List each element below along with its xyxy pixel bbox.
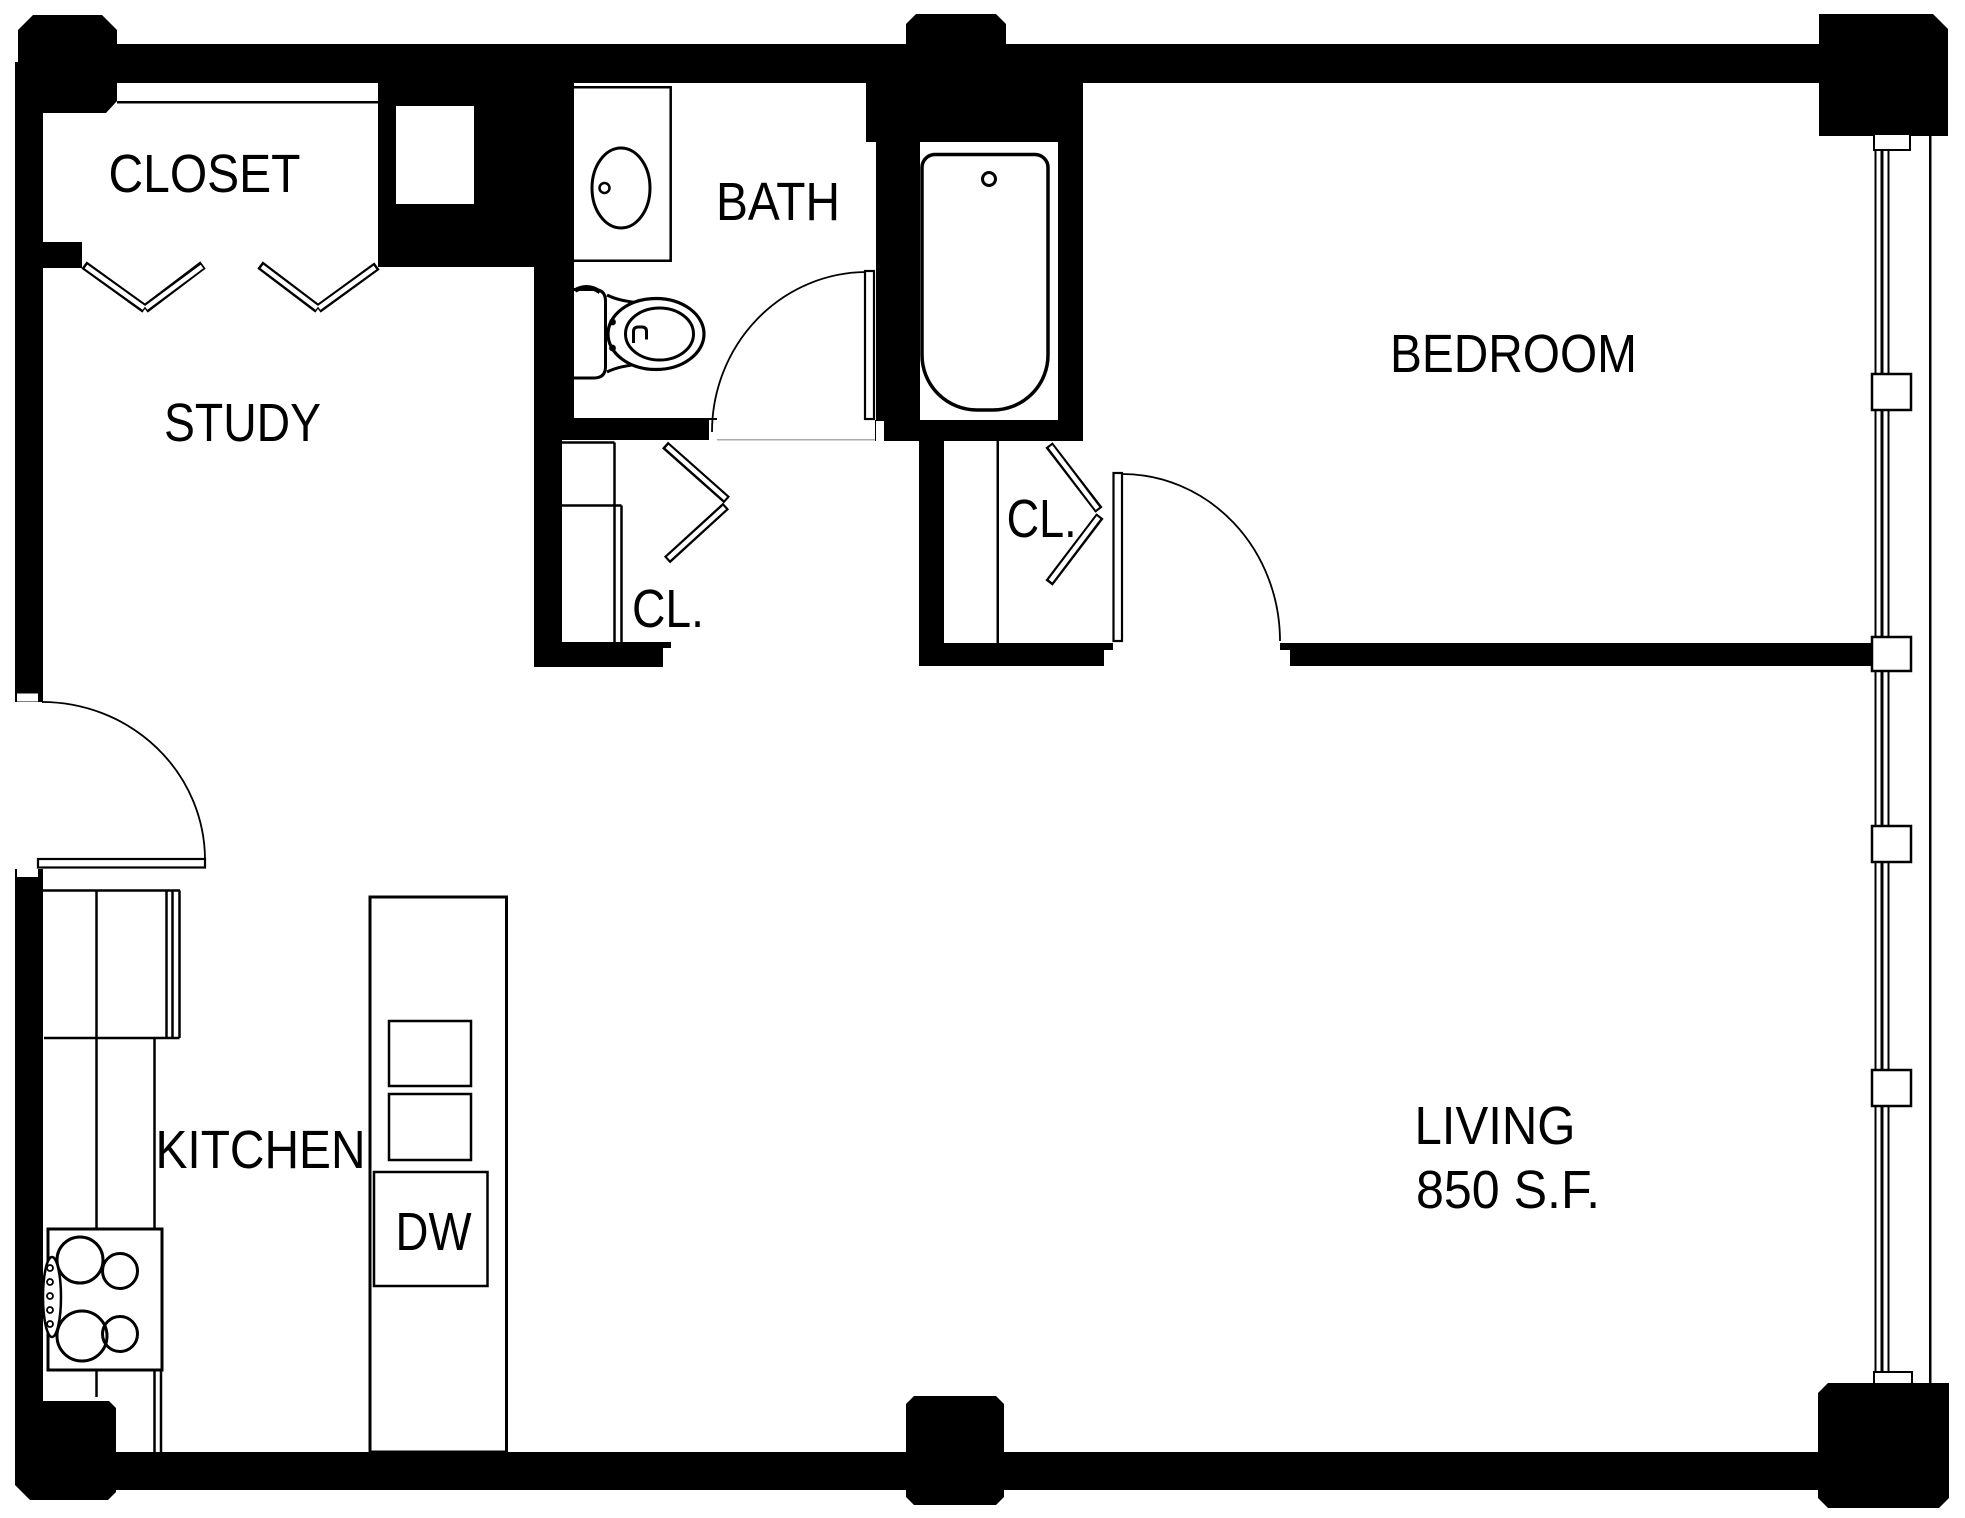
svg-text:BEDROOM: BEDROOM [1390, 324, 1637, 384]
svg-text:CL.: CL. [632, 579, 704, 639]
svg-text:CL.: CL. [1007, 489, 1077, 549]
svg-text:CLOSET: CLOSET [109, 144, 301, 204]
svg-text:BATH: BATH [716, 172, 840, 232]
svg-text:STUDY: STUDY [164, 393, 321, 453]
svg-text:850 S.F.: 850 S.F. [1416, 1160, 1600, 1220]
svg-text:DW: DW [396, 1202, 472, 1262]
svg-text:KITCHEN: KITCHEN [156, 1120, 366, 1180]
svg-text:LIVING: LIVING [1415, 1096, 1576, 1156]
